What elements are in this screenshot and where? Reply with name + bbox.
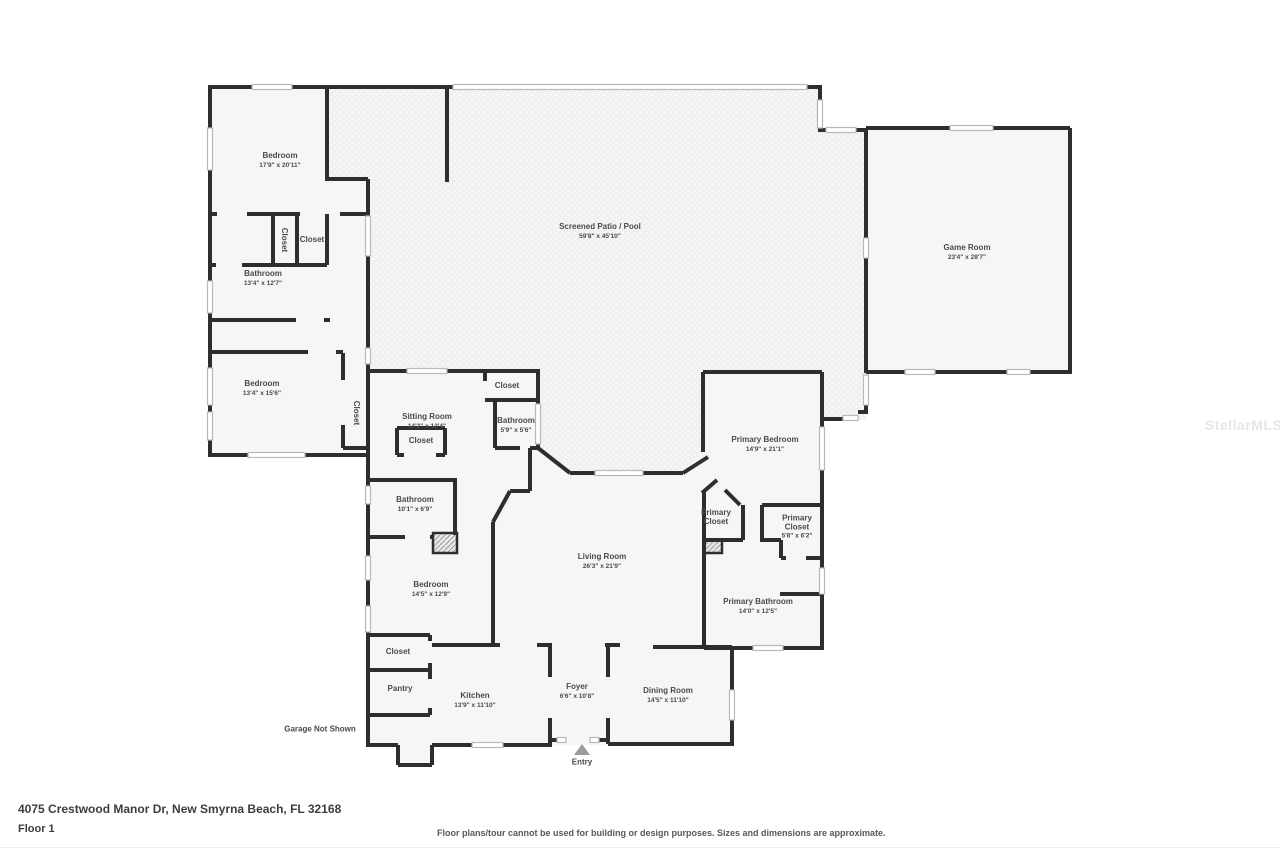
room-dims: 17'9" x 20'11" (259, 161, 300, 169)
room-name: Bedroom (243, 379, 281, 389)
room-dims: 10'1" x 6'9" (396, 505, 434, 513)
room-name: Bathroom (497, 416, 535, 426)
room-label-bedroom-3: Bedroom 14'5" x 12'9" (412, 580, 450, 598)
room-name: Primary Closet (692, 508, 740, 526)
room-name: Foyer (560, 682, 595, 692)
room-name: Dining Room (643, 686, 693, 696)
watermark: StellarMLS (1205, 417, 1280, 433)
room-label-screened-patio: Screened Patio / Pool 59'8" x 45'10" (559, 222, 641, 240)
room-name: Bathroom (396, 495, 434, 505)
floor-plan-page: Bedroom 17'9" x 20'11" Closet Closet Bat… (0, 0, 1280, 853)
address-text: 4075 Crestwood Manor Dr, New Smyrna Beac… (18, 802, 341, 816)
room-dims: 14'2" x 12'4" (402, 422, 452, 430)
room-label-bathroom-3: Bathroom 10'1" x 6'9" (396, 495, 434, 513)
room-label-sitting-room: Sitting Room 14'2" x 12'4" (402, 412, 452, 430)
room-dims: 6'6" x 10'8" (560, 692, 595, 700)
room-name: Bathroom (244, 269, 282, 279)
room-name: Living Room (578, 552, 626, 562)
room-label-primary-bedroom: Primary Bedroom 14'9" x 21'1" (731, 435, 798, 453)
room-dims: 23'4" x 28'7" (943, 253, 990, 261)
room-name: Closet (351, 401, 361, 425)
floor-plan-drawing (0, 0, 1280, 853)
disclaimer-text: Floor plans/tour cannot be used for buil… (437, 828, 886, 838)
room-label-closet-c: Closet (351, 401, 361, 425)
room-label-bathroom-2: Bathroom 5'9" x 5'6" (497, 416, 535, 434)
room-dims: 14'5" x 11'10" (643, 696, 693, 704)
room-label-closet-a: Closet (279, 228, 289, 252)
room-label-game-room: Game Room 23'4" x 28'7" (943, 243, 990, 261)
floor-label: Floor 1 (18, 823, 55, 835)
room-name: Bedroom (259, 151, 300, 161)
room-name: Game Room (943, 243, 990, 253)
room-dims: 5'8" x 6'2" (773, 533, 821, 540)
room-name: Closet (409, 436, 433, 446)
room-dims: 5'9" x 5'6" (497, 426, 535, 434)
room-name: Closet (300, 235, 324, 245)
room-label-closet-b: Closet (300, 235, 324, 245)
room-name: Sitting Room (402, 412, 452, 422)
entry-label: Entry (572, 758, 592, 767)
entry-arrow (574, 744, 590, 755)
room-label-primary-bathroom: Primary Bathroom 14'0" x 12'5" (723, 597, 793, 615)
room-label-bathroom-1: Bathroom 13'4" x 12'7" (244, 269, 282, 287)
room-dims: 14'0" x 12'5" (723, 607, 793, 615)
room-label-bedroom-1: Bedroom 17'9" x 20'11" (259, 151, 300, 169)
room-name: Closet (279, 228, 289, 252)
room-label-closet-f: Closet (386, 647, 410, 657)
room-name: Closet (386, 647, 410, 657)
room-dims: 14'5" x 12'9" (412, 590, 450, 598)
room-label-living-room: Living Room 26'3" x 21'9" (578, 552, 626, 570)
room-name: Kitchen (454, 691, 495, 701)
room-name: Primary Bathroom (723, 597, 793, 607)
garage-note: Garage Not Shown (284, 725, 356, 734)
room-label-pantry: Pantry (388, 684, 413, 694)
bottom-divider (0, 847, 1280, 848)
room-label-closet-d: Closet (409, 436, 433, 446)
room-label-closet-e: Closet (495, 381, 519, 391)
room-dims: 26'3" x 21'9" (578, 562, 626, 570)
room-label-primary-closet-2: Primary Closet 5'8" x 6'2" (773, 514, 821, 541)
room-dims: 13'9" x 11'10" (454, 701, 495, 709)
room-label-foyer: Foyer 6'6" x 10'8" (560, 682, 595, 700)
room-name: Primary Bedroom (731, 435, 798, 445)
room-name: Primary Closet (773, 514, 821, 532)
room-name: Pantry (388, 684, 413, 694)
room-label-bedroom-2: Bedroom 13'4" x 15'6" (243, 379, 281, 397)
room-name: Bedroom (412, 580, 450, 590)
room-name: Closet (495, 381, 519, 391)
room-dims: 13'4" x 15'6" (243, 389, 281, 397)
room-dims: 59'8" x 45'10" (559, 232, 641, 240)
room-label-kitchen: Kitchen 13'9" x 11'10" (454, 691, 495, 709)
room-name: Screened Patio / Pool (559, 222, 641, 232)
room-label-dining-room: Dining Room 14'5" x 11'10" (643, 686, 693, 704)
room-dims: 14'9" x 21'1" (731, 445, 798, 453)
room-dims: 13'4" x 12'7" (244, 279, 282, 287)
room-label-primary-closet-1: Primary Closet (692, 508, 740, 526)
